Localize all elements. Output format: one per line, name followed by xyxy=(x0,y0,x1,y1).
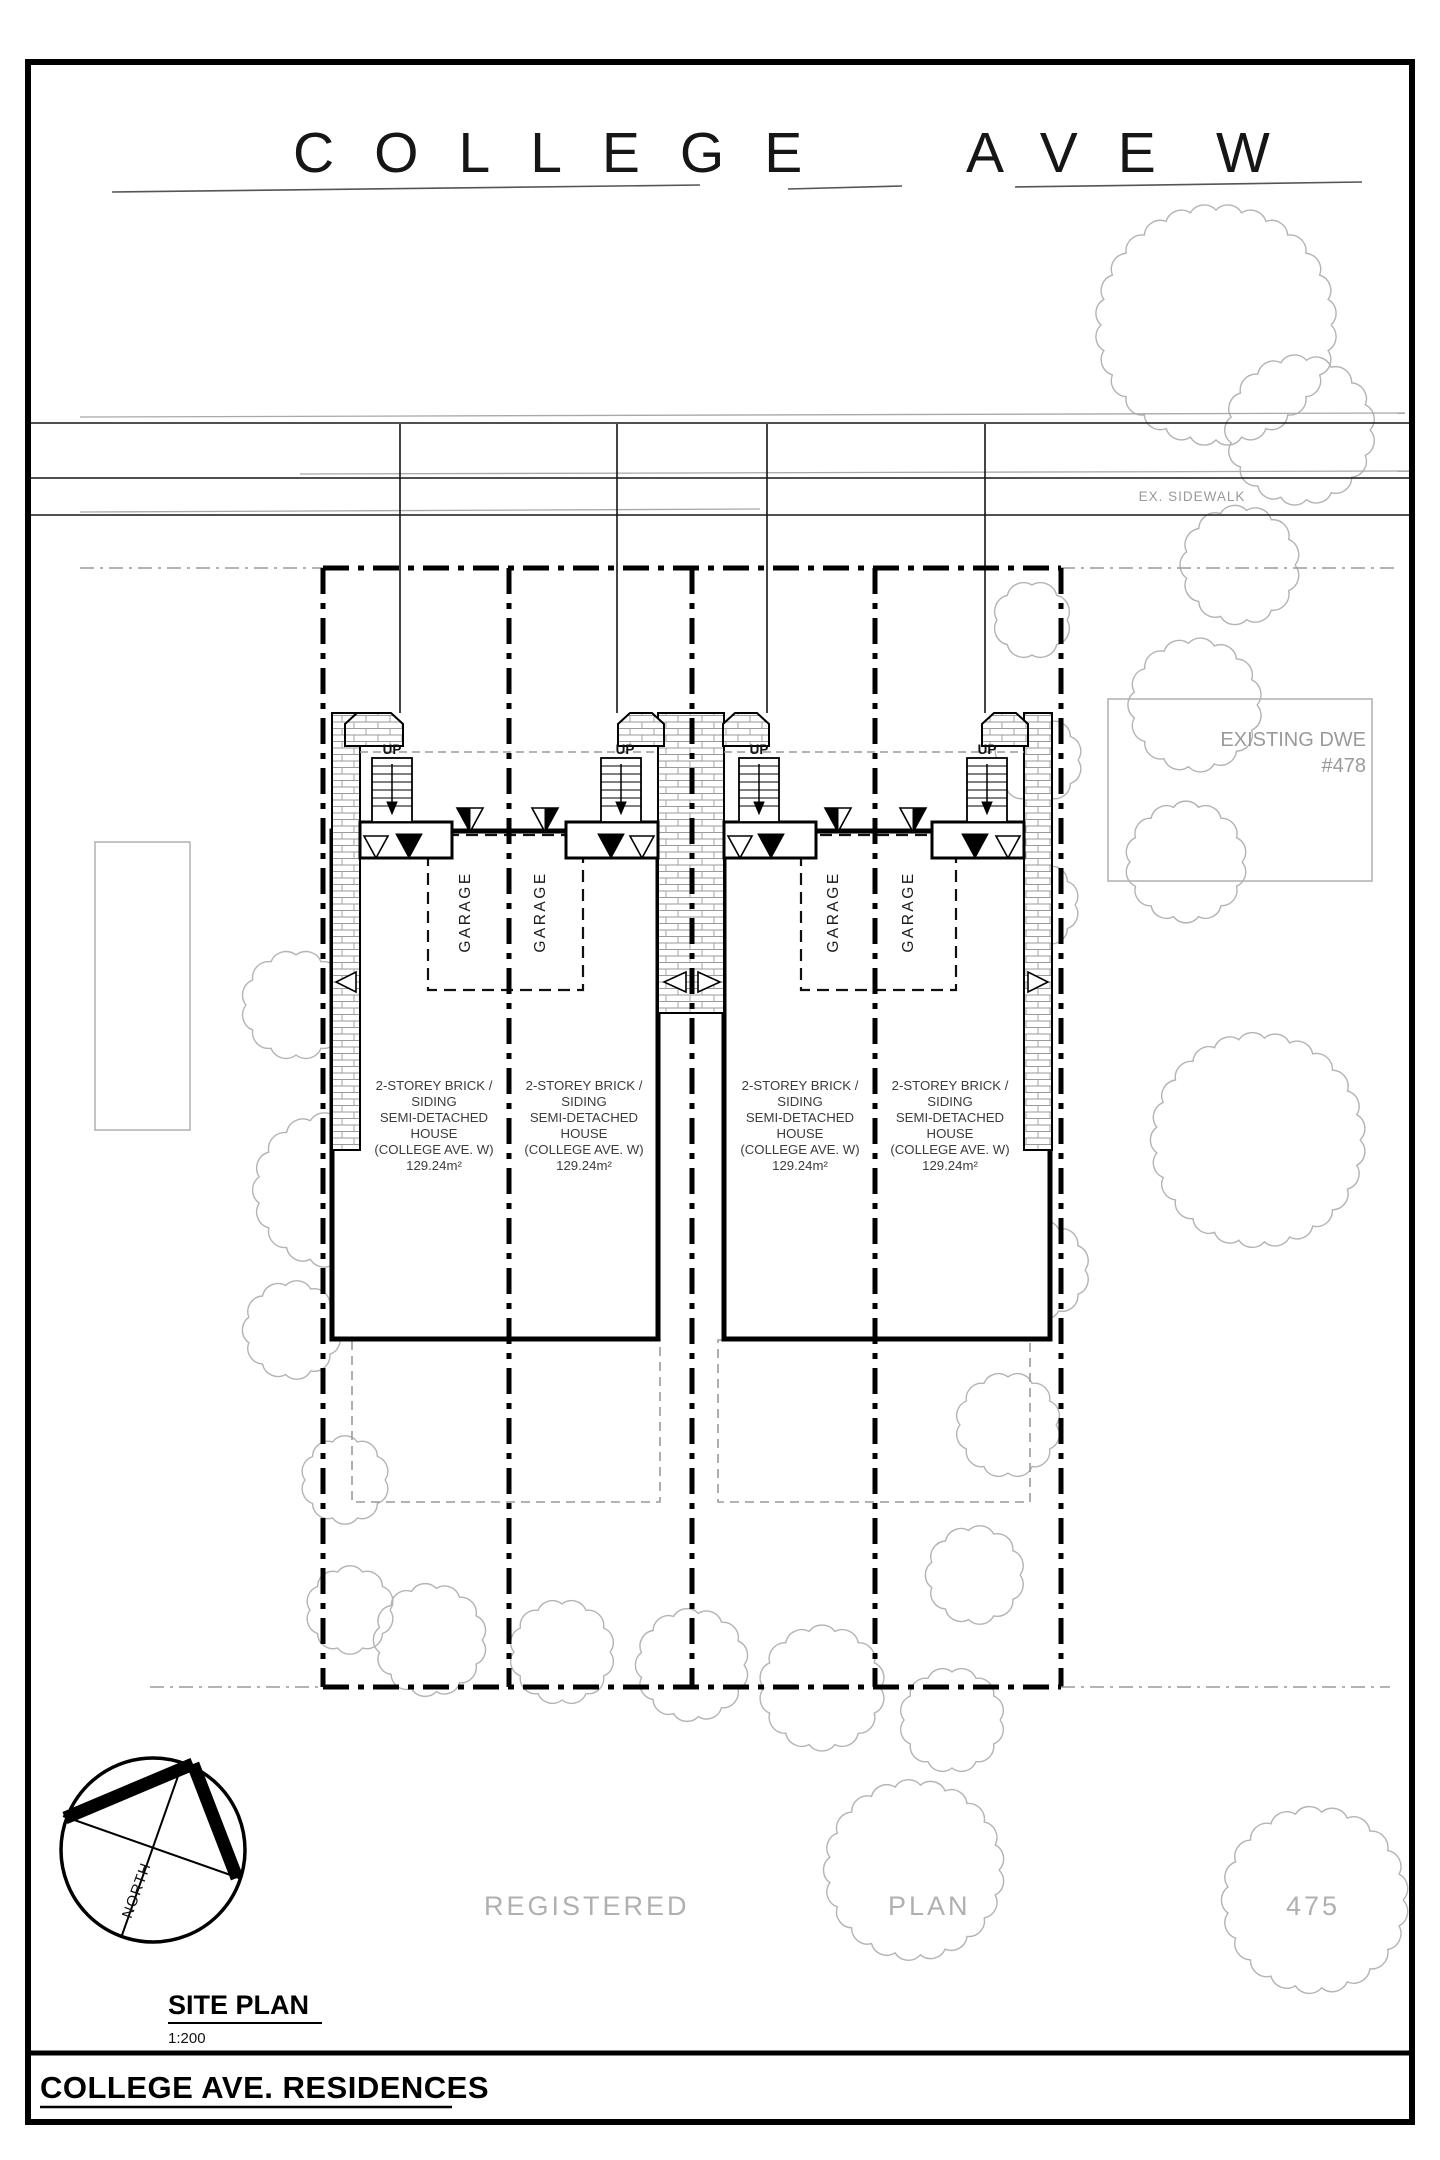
svg-text:(COLLEGE AVE. W): (COLLEGE AVE. W) xyxy=(890,1142,1009,1157)
svg-text:SIDING: SIDING xyxy=(561,1094,606,1109)
garage-label: GARAGE xyxy=(457,871,474,952)
drawing-scale: 1:200 xyxy=(168,2030,206,2047)
site-plan-drawing: EX. SIDEWALK COLLEGE AVE W EXISTING DWE … xyxy=(0,0,1440,2160)
svg-text:(COLLEGE AVE. W): (COLLEGE AVE. W) xyxy=(740,1142,859,1157)
sidewalk-label: EX. SIDEWALK xyxy=(1139,489,1246,504)
svg-text:HOUSE: HOUSE xyxy=(777,1126,824,1141)
up-label: UP xyxy=(750,742,769,757)
svg-text:HOUSE: HOUSE xyxy=(927,1126,974,1141)
site-plan-sheet: EX. SIDEWALK COLLEGE AVE W EXISTING DWE … xyxy=(0,0,1440,2160)
garage-label: GARAGE xyxy=(825,871,842,952)
street-title: COLLEGE AVE W xyxy=(112,121,1362,192)
svg-text:SEMI-DETACHED: SEMI-DETACHED xyxy=(380,1110,488,1125)
project-title: COLLEGE AVE. RESIDENCES xyxy=(40,2070,489,2105)
brick-pier-east xyxy=(1024,713,1052,1150)
svg-text:SEMI-DETACHED: SEMI-DETACHED xyxy=(530,1110,638,1125)
brick-pier-west xyxy=(332,713,360,1150)
svg-text:SIDING: SIDING xyxy=(411,1094,456,1109)
svg-text:REGISTERED: REGISTERED xyxy=(484,1891,690,1921)
street-name-ave: AVE xyxy=(966,121,1196,185)
svg-text:2-STOREY BRICK /: 2-STOREY BRICK / xyxy=(892,1078,1009,1093)
svg-text:2-STOREY BRICK /: 2-STOREY BRICK / xyxy=(526,1078,643,1093)
garage-label: GARAGE xyxy=(900,871,917,952)
svg-text:475: 475 xyxy=(1286,1891,1340,1921)
svg-text:PLAN: PLAN xyxy=(888,1891,971,1921)
svg-text:2-STOREY BRICK /: 2-STOREY BRICK / xyxy=(376,1078,493,1093)
stair-unit-4 xyxy=(967,758,1007,822)
street-name-w: W xyxy=(1216,121,1270,185)
svg-text:129.24m²: 129.24m² xyxy=(772,1158,828,1173)
up-label: UP xyxy=(616,742,635,757)
svg-text:129.24m²: 129.24m² xyxy=(922,1158,978,1173)
stair-unit-2 xyxy=(601,758,641,822)
svg-text:129.24m²: 129.24m² xyxy=(406,1158,462,1173)
garage-label: GARAGE xyxy=(532,871,549,952)
svg-text:SIDING: SIDING xyxy=(927,1094,972,1109)
svg-text:129.24m²: 129.24m² xyxy=(556,1158,612,1173)
svg-text:(COLLEGE AVE. W): (COLLEGE AVE. W) xyxy=(374,1142,493,1157)
svg-text:2-STOREY BRICK /: 2-STOREY BRICK / xyxy=(742,1078,859,1093)
stair-unit-3 xyxy=(739,758,779,822)
svg-text:(COLLEGE AVE. W): (COLLEGE AVE. W) xyxy=(524,1142,643,1157)
up-label: UP xyxy=(383,742,402,757)
street-name-college: COLLEGE xyxy=(293,121,842,185)
svg-text:SEMI-DETACHED: SEMI-DETACHED xyxy=(896,1110,1004,1125)
svg-text:SIDING: SIDING xyxy=(777,1094,822,1109)
stair-unit-1 xyxy=(372,758,412,822)
svg-text:HOUSE: HOUSE xyxy=(411,1126,458,1141)
svg-text:SEMI-DETACHED: SEMI-DETACHED xyxy=(746,1110,854,1125)
up-label: UP xyxy=(978,742,997,757)
drawing-title: SITE PLAN xyxy=(168,1990,309,2020)
existing-dwelling-label-line2: #478 xyxy=(1322,755,1367,777)
svg-text:HOUSE: HOUSE xyxy=(561,1126,608,1141)
existing-dwelling-label-line1: EXISTING DWE xyxy=(1220,729,1366,751)
